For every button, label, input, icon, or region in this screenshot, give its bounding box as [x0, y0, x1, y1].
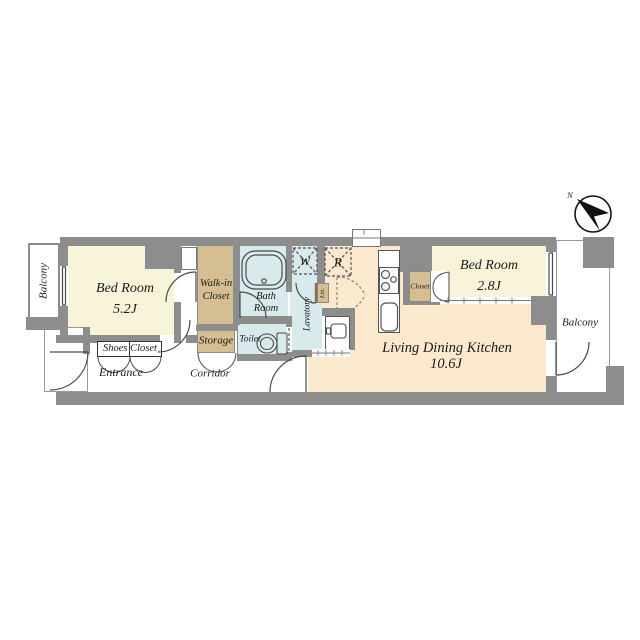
window-bedroom2-gap	[546, 252, 556, 296]
wall-toilet-bottom	[237, 354, 292, 361]
sliding-door-lavatory	[312, 349, 350, 357]
wall-porch	[83, 327, 90, 354]
balcony-door-gap	[546, 340, 556, 376]
bedroom1-name: Bed Room	[96, 282, 154, 296]
bedroom2-size: 2.8J	[477, 280, 501, 294]
sliding-door-bedroom2	[440, 297, 531, 304]
corridor-label: Corridor	[190, 369, 230, 380]
balcony-right-label: Balcony	[562, 318, 598, 329]
storage-label: Storage	[199, 336, 233, 347]
wall-top	[60, 237, 556, 246]
vanity-box	[325, 316, 350, 350]
wall-above-closet	[400, 237, 432, 272]
duct-box	[352, 229, 381, 247]
linen-label: Lin.	[320, 288, 327, 298]
wall-bottom	[56, 392, 624, 405]
wall-balcony-right-end	[606, 366, 624, 405]
wall-bed1-wic-upper	[174, 246, 181, 273]
wall-balcony-right-top	[583, 237, 614, 268]
pipe-space-box	[181, 247, 197, 270]
wall-bed1-wic-lower	[174, 302, 181, 343]
ldk-door-arc	[270, 356, 306, 392]
wall-balcony-left-end	[26, 317, 62, 330]
walkin-closet-name-1: Walk-in	[200, 279, 232, 290]
wall-bed1-bottom-stub	[186, 335, 198, 343]
wall-wic-bath	[233, 237, 240, 325]
ldk-size: 10.6J	[430, 357, 462, 372]
wall-bath-lav	[286, 245, 292, 292]
wall-bath-toilet	[237, 316, 292, 324]
wall-pillar	[531, 296, 556, 325]
walkin-closet-name-2: Closet	[203, 292, 230, 303]
toilet-door-gap	[286, 327, 292, 352]
compass-icon	[575, 196, 611, 232]
bath-name-2: Room	[254, 304, 279, 315]
refrigerator-spot-label: R	[334, 256, 342, 269]
stove-box	[379, 267, 399, 294]
bath-name-1: Bath	[256, 292, 276, 303]
shoes-closet-label: Shoes Closet	[103, 344, 157, 355]
wall-wic-storage-sep	[196, 325, 237, 331]
lavatory-label: Lavatory	[303, 297, 313, 331]
window-bedroom1-gap	[60, 266, 68, 306]
washer-spot-label: W	[300, 255, 310, 267]
bedroom1-size: 5.2J	[113, 303, 137, 317]
balcony-left-label: Balcony	[39, 263, 50, 299]
floor-plan: Balcony Bed Room 5.2J Walk-in Closet Sho…	[0, 0, 640, 640]
toilet-label: Toilet	[239, 335, 260, 345]
wall-washer-fridge-sep	[317, 237, 325, 283]
ldk-name: Living Dining Kitchen	[382, 341, 512, 356]
compass-n-label: N	[567, 191, 573, 200]
bedroom2-name: Bed Room	[460, 259, 518, 273]
entrance-label: Entrance	[99, 366, 143, 378]
closet-label: Closet	[410, 282, 429, 290]
wall-bedroom1-notch	[145, 246, 174, 269]
